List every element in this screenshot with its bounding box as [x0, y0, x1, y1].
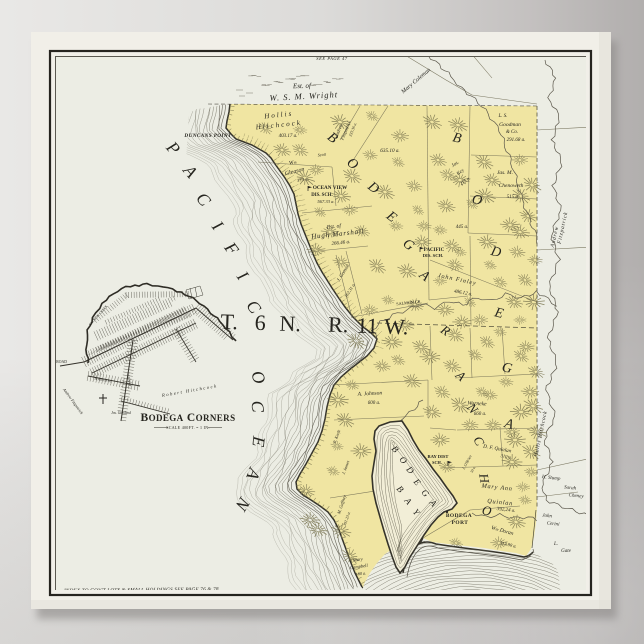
- svg-text:DIS. SCH.: DIS. SCH.: [423, 253, 444, 258]
- svg-text:W.: W.: [384, 314, 409, 340]
- svg-text:BODEGA CORNERS: BODEGA CORNERS: [141, 412, 236, 424]
- svg-text:6: 6: [254, 310, 266, 335]
- svg-text:BAY DIST: BAY DIST: [428, 454, 449, 459]
- svg-text:Warneke: Warneke: [467, 401, 487, 408]
- svg-text:291.68 a.: 291.68 a.: [507, 138, 526, 143]
- svg-text:403.17 a.: 403.17 a.: [279, 134, 298, 139]
- svg-text:R.: R.: [328, 312, 349, 338]
- svg-text:C: C: [247, 400, 268, 414]
- svg-text:BODEGA: BODEGA: [446, 513, 472, 519]
- svg-text:Goodman: Goodman: [499, 122, 521, 128]
- svg-text:SCALE 400FT. = 1 IN.: SCALE 400FT. = 1 IN.: [166, 425, 210, 430]
- svg-text:L.: L.: [553, 542, 558, 547]
- svg-text:Jos. Gartland: Jos. Gartland: [111, 411, 131, 415]
- svg-text:635.10 a.: 635.10 a.: [380, 148, 399, 154]
- svg-text:DUNCANS POINT: DUNCANS POINT: [183, 133, 232, 139]
- svg-text:660 a.: 660 a.: [474, 412, 487, 417]
- svg-text:T.: T.: [220, 309, 238, 335]
- svg-text:11: 11: [356, 313, 378, 339]
- svg-text:445 a.: 445 a.: [456, 225, 469, 230]
- svg-text:567.33 a.: 567.33 a.: [317, 199, 334, 204]
- svg-text:Jas. M.: Jas. M.: [497, 170, 513, 176]
- svg-text:Gate: Gate: [561, 549, 572, 554]
- svg-text:John: John: [542, 514, 553, 520]
- svg-text:515 a.: 515 a.: [507, 195, 520, 200]
- svg-text:E: E: [248, 434, 269, 448]
- svg-text:600 a.: 600 a.: [368, 401, 381, 406]
- svg-text:L. S.: L. S.: [497, 114, 507, 119]
- svg-text:Scott: Scott: [317, 151, 327, 157]
- svg-text:OCEAN VIEW: OCEAN VIEW: [313, 185, 348, 191]
- svg-text:SCH.: SCH.: [432, 460, 442, 465]
- svg-text:DIS. SCH.: DIS. SCH.: [311, 193, 332, 198]
- svg-text:Est. of: Est. of: [292, 82, 312, 91]
- svg-text:& Co.: & Co.: [506, 130, 518, 135]
- svg-text:N.: N.: [279, 311, 301, 337]
- svg-text:PORT: PORT: [452, 520, 469, 526]
- svg-text:Chenoweth: Chenoweth: [499, 183, 524, 189]
